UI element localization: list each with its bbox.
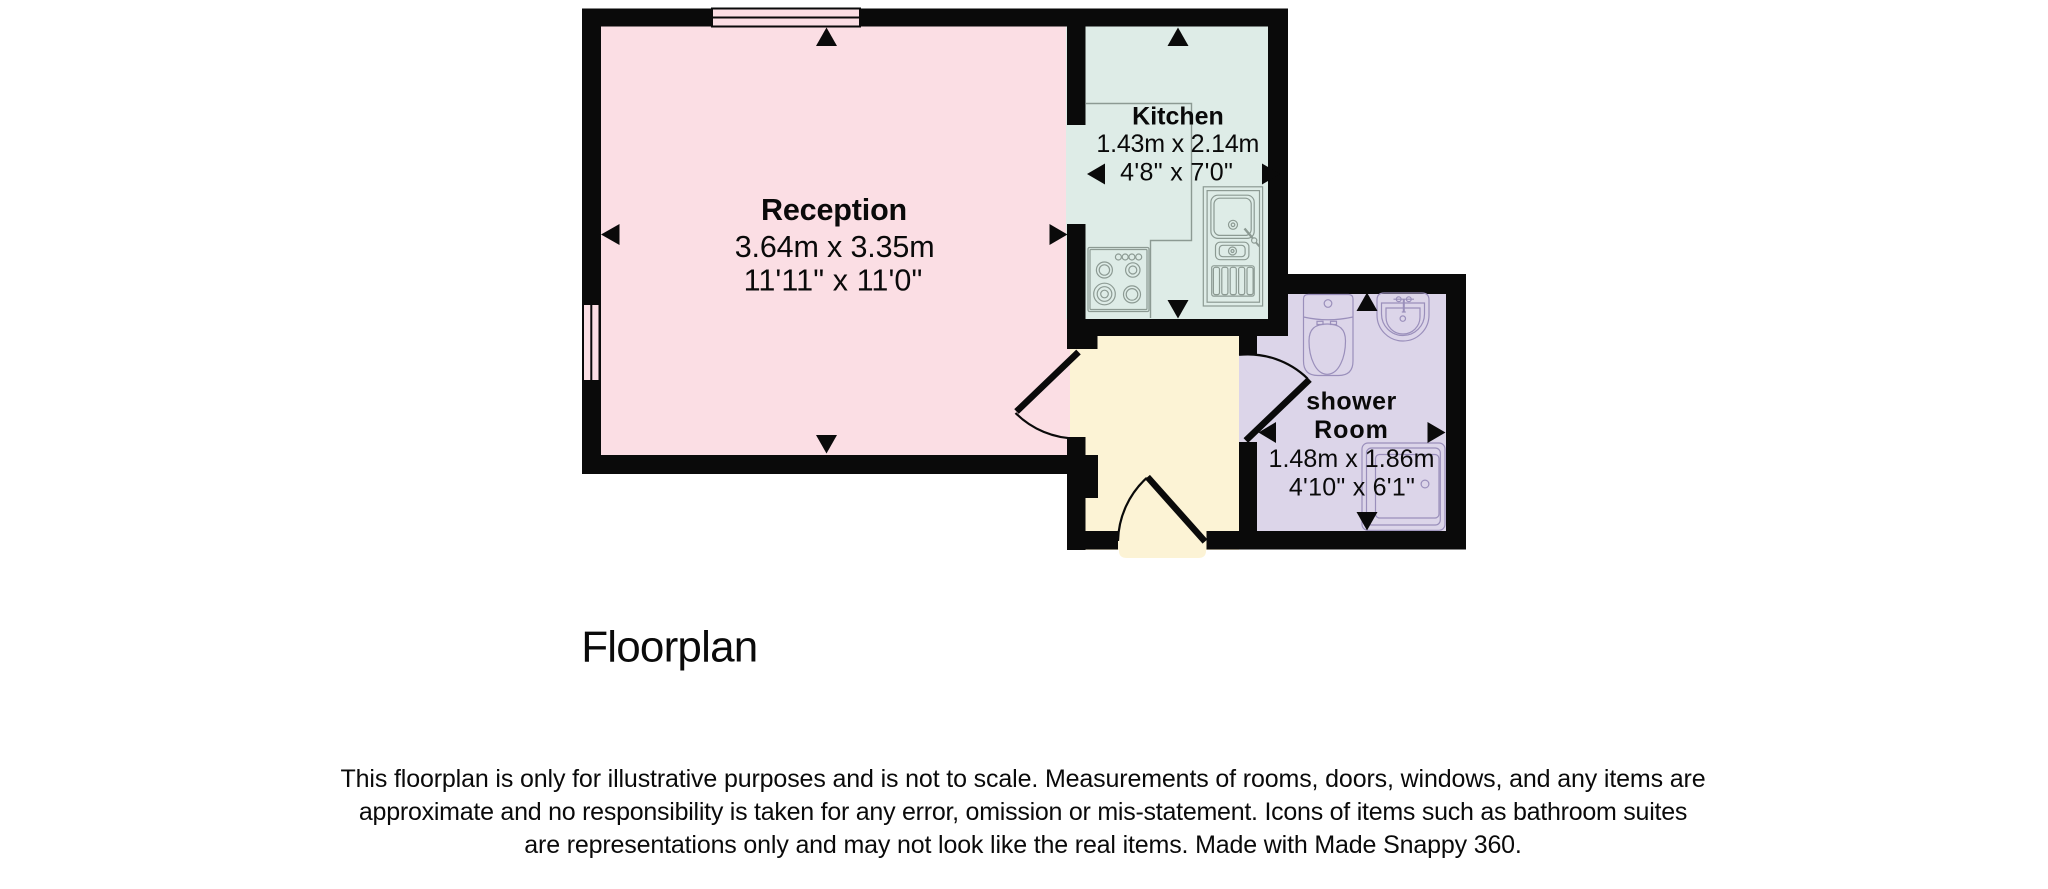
- svg-text:Floorplan: Floorplan: [581, 622, 757, 671]
- svg-text:Room: Room: [1314, 416, 1389, 444]
- svg-text:Kitchen: Kitchen: [1132, 102, 1224, 130]
- svg-text:11'11" x 11'0": 11'11" x 11'0": [744, 264, 923, 298]
- svg-text:3.64m x 3.35m: 3.64m x 3.35m: [735, 230, 935, 264]
- svg-text:Reception: Reception: [761, 193, 907, 227]
- svg-text:shower: shower: [1306, 387, 1397, 415]
- svg-text:approximate and no responsibil: approximate and no responsibility is tak…: [359, 798, 1687, 826]
- svg-text:This floorplan is only for ill: This floorplan is only for illustrative …: [341, 765, 1706, 793]
- svg-text:are representations only and m: are representations only and may not loo…: [524, 831, 1521, 859]
- svg-text:4'10" x 6'1": 4'10" x 6'1": [1289, 474, 1415, 502]
- svg-text:1.43m x 2.14m: 1.43m x 2.14m: [1096, 130, 1259, 158]
- svg-text:4'8" x 7'0": 4'8" x 7'0": [1120, 158, 1233, 186]
- svg-text:1.48m x 1.86m: 1.48m x 1.86m: [1268, 445, 1434, 473]
